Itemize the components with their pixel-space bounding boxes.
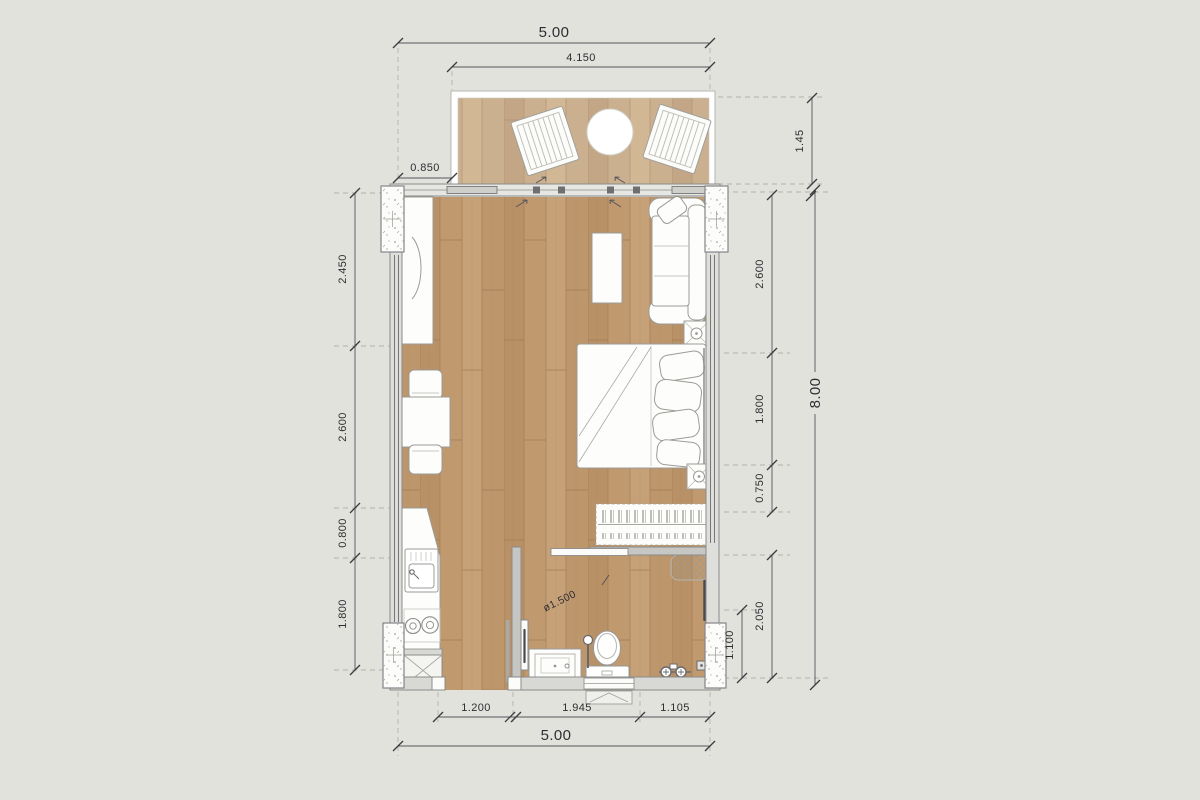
column-top-left bbox=[381, 186, 404, 252]
dim-right-bathroom-inner: 1.100 bbox=[724, 630, 736, 660]
dim-overall-width-top: 5.00 bbox=[539, 24, 570, 41]
dim-right-bathroom-zone: 2.050 bbox=[754, 601, 766, 631]
floor-plan-canvas: 5.00 4.150 0.850 1.45 2.450 2.600 0.800 … bbox=[0, 0, 1200, 800]
dim-right-wardrobe-gap: 0.750 bbox=[754, 473, 766, 503]
dim-left-offset: 0.850 bbox=[410, 162, 440, 174]
side-table bbox=[684, 321, 709, 346]
dining-chair-bottom bbox=[409, 445, 442, 474]
dim-balcony-width: 4.150 bbox=[566, 52, 596, 64]
floor-plan-drawing: 5.00 4.150 0.850 1.45 2.450 2.600 0.800 … bbox=[0, 0, 1200, 800]
sofa bbox=[649, 195, 706, 324]
right-wall bbox=[706, 184, 719, 690]
dim-right-living-zone: 2.600 bbox=[754, 259, 766, 289]
dim-left-kitchen-zone: 1.800 bbox=[337, 599, 349, 629]
dim-overall-width-bottom: 5.00 bbox=[541, 727, 572, 744]
wardrobe bbox=[596, 504, 708, 545]
bathroom-wall bbox=[512, 547, 521, 687]
sliding-door-leaf bbox=[551, 549, 628, 556]
column-top-right bbox=[705, 186, 728, 252]
dining-table bbox=[402, 397, 450, 447]
dim-left-desk-zone: 2.450 bbox=[337, 254, 349, 284]
dim-balcony-depth: 1.45 bbox=[794, 129, 806, 152]
column-bottom-right bbox=[705, 623, 726, 688]
door-track bbox=[506, 620, 510, 682]
column-bottom-left bbox=[383, 623, 404, 688]
dim-right-bed-zone: 1.800 bbox=[754, 394, 766, 424]
glass-panel bbox=[672, 187, 706, 194]
dim-left-counter-corner: 0.800 bbox=[337, 518, 349, 548]
kitchen-sink bbox=[405, 549, 438, 592]
dim-bottom-shower-width: 1.105 bbox=[660, 702, 690, 714]
shower-mat bbox=[671, 555, 708, 580]
dim-bottom-kitchen-width: 1.200 bbox=[461, 702, 491, 714]
balcony-round-table bbox=[587, 109, 633, 155]
desk bbox=[402, 197, 433, 344]
dim-overall-height: 8.00 bbox=[807, 378, 824, 409]
balcony bbox=[451, 91, 715, 188]
dim-bottom-bath-width: 1.945 bbox=[562, 702, 592, 714]
bed bbox=[577, 344, 711, 489]
dim-left-dining-zone: 2.600 bbox=[337, 412, 349, 442]
coffee-table bbox=[592, 233, 622, 303]
wall-end-cap bbox=[432, 677, 445, 690]
glass-panel bbox=[447, 187, 497, 194]
pillow bbox=[653, 378, 702, 413]
entrance-threshold-floor bbox=[445, 677, 508, 690]
wall-end-cap bbox=[508, 677, 521, 690]
left-wall bbox=[390, 184, 402, 690]
dining-chair-top bbox=[409, 370, 442, 399]
